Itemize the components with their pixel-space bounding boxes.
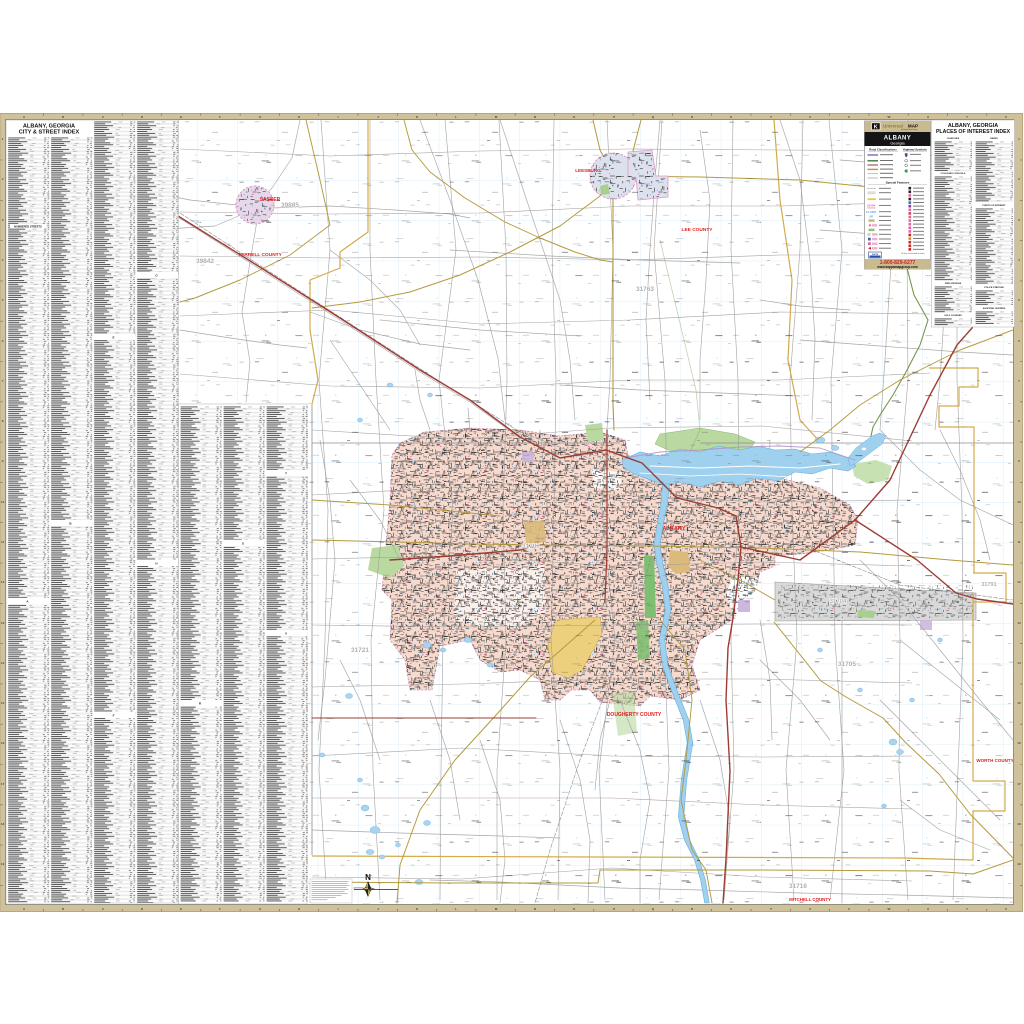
svg-text:10: 10: [1, 500, 5, 504]
svg-text:Special Features: Special Features: [886, 180, 910, 184]
svg-text:31721: 31721: [351, 647, 369, 654]
svg-text:DOUGHERTY COUNTY: DOUGHERTY COUNTY: [607, 712, 662, 718]
svg-text:19: 19: [1017, 862, 1021, 866]
svg-text:www.kappamapgroup.com: www.kappamapgroup.com: [876, 265, 918, 269]
svg-text:FIRE STATIONS: FIRE STATIONS: [945, 282, 962, 285]
svg-text:S: S: [242, 542, 244, 546]
svg-text:18: 18: [1017, 822, 1021, 826]
svg-text:CITY & STREET INDEX: CITY & STREET INDEX: [19, 130, 80, 136]
svg-text:15: 15: [1017, 701, 1021, 705]
svg-text:ALBANY: ALBANY: [662, 526, 686, 532]
svg-text:P: P: [613, 115, 615, 119]
svg-text:8: 8: [2, 419, 4, 423]
svg-text:W: W: [888, 115, 891, 119]
svg-text:5: 5: [2, 298, 4, 302]
svg-text:14: 14: [1, 661, 5, 665]
svg-text:2: 2: [1018, 177, 1020, 181]
svg-text:19: 19: [1, 862, 5, 866]
svg-text:LEESBURG: LEESBURG: [575, 168, 601, 173]
svg-text:KAPPA: KAPPA: [872, 253, 879, 256]
svg-text:E: E: [180, 907, 182, 911]
svg-text:8: 8: [1018, 419, 1020, 423]
svg-text:F: F: [113, 714, 115, 718]
svg-text:Highway Symbols: Highway Symbols: [903, 148, 927, 152]
svg-text:F: F: [219, 115, 221, 119]
svg-text:J: J: [377, 115, 379, 119]
svg-text:31791: 31791: [981, 582, 996, 588]
svg-text:5: 5: [1018, 298, 1020, 302]
svg-text:6: 6: [2, 339, 4, 343]
svg-text:39885: 39885: [281, 202, 299, 209]
svg-text:all units in thousands of mete: all units in thousands of meters: [901, 252, 924, 255]
svg-text:Road Classifications: Road Classifications: [869, 148, 897, 152]
svg-text:15: 15: [1, 701, 5, 705]
svg-text:L: L: [455, 115, 457, 119]
svg-text:P: P: [613, 907, 615, 911]
svg-text:NUMBERED STREETS: NUMBERED STREETS: [14, 225, 42, 229]
svg-text:N: N: [365, 873, 371, 882]
svg-text:L: L: [455, 907, 457, 911]
svg-text:I: I: [338, 907, 339, 911]
svg-text:1: 1: [1018, 137, 1020, 141]
svg-text:1: 1: [2, 137, 4, 141]
svg-text:T: T: [770, 115, 772, 119]
svg-text:6: 6: [1018, 339, 1020, 343]
svg-text:S: S: [730, 115, 732, 119]
svg-text:7: 7: [2, 379, 4, 383]
svg-text:9: 9: [1018, 459, 1020, 463]
svg-text:3: 3: [1018, 218, 1020, 222]
svg-text:T: T: [770, 907, 772, 911]
svg-text:TERRELL COUNTY: TERRELL COUNTY: [238, 252, 282, 258]
svg-text:Georgia: Georgia: [890, 140, 905, 145]
svg-text:J: J: [377, 907, 379, 911]
svg-text:16: 16: [1, 741, 5, 745]
svg-text:10: 10: [1017, 500, 1021, 504]
svg-text:V: V: [285, 632, 287, 636]
svg-text:E: E: [112, 336, 114, 340]
svg-text:31716: 31716: [789, 883, 807, 890]
svg-text:M: M: [495, 907, 498, 911]
svg-text:16: 16: [1017, 741, 1021, 745]
svg-text:S: S: [730, 907, 732, 911]
svg-text:12: 12: [1017, 580, 1021, 584]
svg-text:4: 4: [2, 258, 4, 262]
svg-text:11: 11: [1, 540, 5, 544]
svg-text:14: 14: [1017, 661, 1021, 665]
svg-text:POINTS OF INTEREST: POINTS OF INTEREST: [982, 205, 1006, 207]
svg-text:by Kappa Map Group: by Kappa Map Group: [901, 128, 917, 131]
svg-text:9: 9: [2, 459, 4, 463]
svg-text:H: H: [155, 562, 157, 566]
svg-text:MITCHELL COUNTY: MITCHELL COUNTY: [789, 897, 831, 902]
svg-text:E: E: [180, 115, 182, 119]
svg-text:SHOPPING CENTERS: SHOPPING CENTERS: [983, 308, 1006, 310]
svg-text:13: 13: [1, 621, 5, 625]
svg-text:Z: Z: [1005, 115, 1007, 119]
svg-text:WORTH COUNTY: WORTH COUNTY: [976, 758, 1013, 763]
svg-text:31704: 31704: [830, 599, 847, 605]
svg-text:K: K: [874, 125, 878, 131]
svg-text:17: 17: [1, 782, 5, 786]
svg-text:LEE COUNTY: LEE COUNTY: [682, 227, 714, 233]
svg-text:31707: 31707: [522, 543, 540, 550]
svg-text:3: 3: [2, 218, 4, 222]
svg-text:2: 2: [2, 177, 4, 181]
svg-text:11: 11: [1017, 540, 1021, 544]
svg-text:7: 7: [1018, 379, 1020, 383]
svg-text:17: 17: [1017, 782, 1021, 786]
svg-text:POLICE STATIONS: POLICE STATIONS: [984, 286, 1004, 289]
svg-text:4: 4: [1018, 258, 1020, 262]
svg-text:MAP: MAP: [908, 123, 918, 128]
svg-text:F: F: [219, 907, 221, 911]
svg-text:13: 13: [1017, 621, 1021, 625]
svg-text:31705: 31705: [838, 661, 856, 668]
svg-text:GOLF COURSES: GOLF COURSES: [944, 315, 962, 317]
svg-text:Z: Z: [1005, 907, 1007, 911]
svg-text:PARKS: PARKS: [990, 137, 998, 140]
svg-text:18: 18: [1, 822, 5, 826]
svg-text:SASSER: SASSER: [260, 197, 281, 203]
svg-text:W: W: [888, 907, 891, 911]
svg-text:I: I: [338, 115, 339, 119]
svg-text:T: T: [285, 472, 287, 476]
svg-text:CHURCHES: CHURCHES: [947, 138, 960, 140]
svg-text:31763: 31763: [636, 286, 654, 293]
svg-text:CLARK: CLARK: [866, 210, 877, 214]
svg-text:39842: 39842: [196, 258, 214, 265]
svg-text:Universal: Universal: [883, 123, 903, 128]
svg-text:M: M: [495, 115, 498, 119]
svg-text:PLACES OF INTEREST INDEX: PLACES OF INTEREST INDEX: [936, 129, 1011, 135]
svg-text:COLLEGES / SCHOOLS: COLLEGES / SCHOOLS: [941, 173, 966, 175]
svg-text:31404: 31404: [867, 204, 876, 208]
svg-text:12: 12: [1, 580, 5, 584]
